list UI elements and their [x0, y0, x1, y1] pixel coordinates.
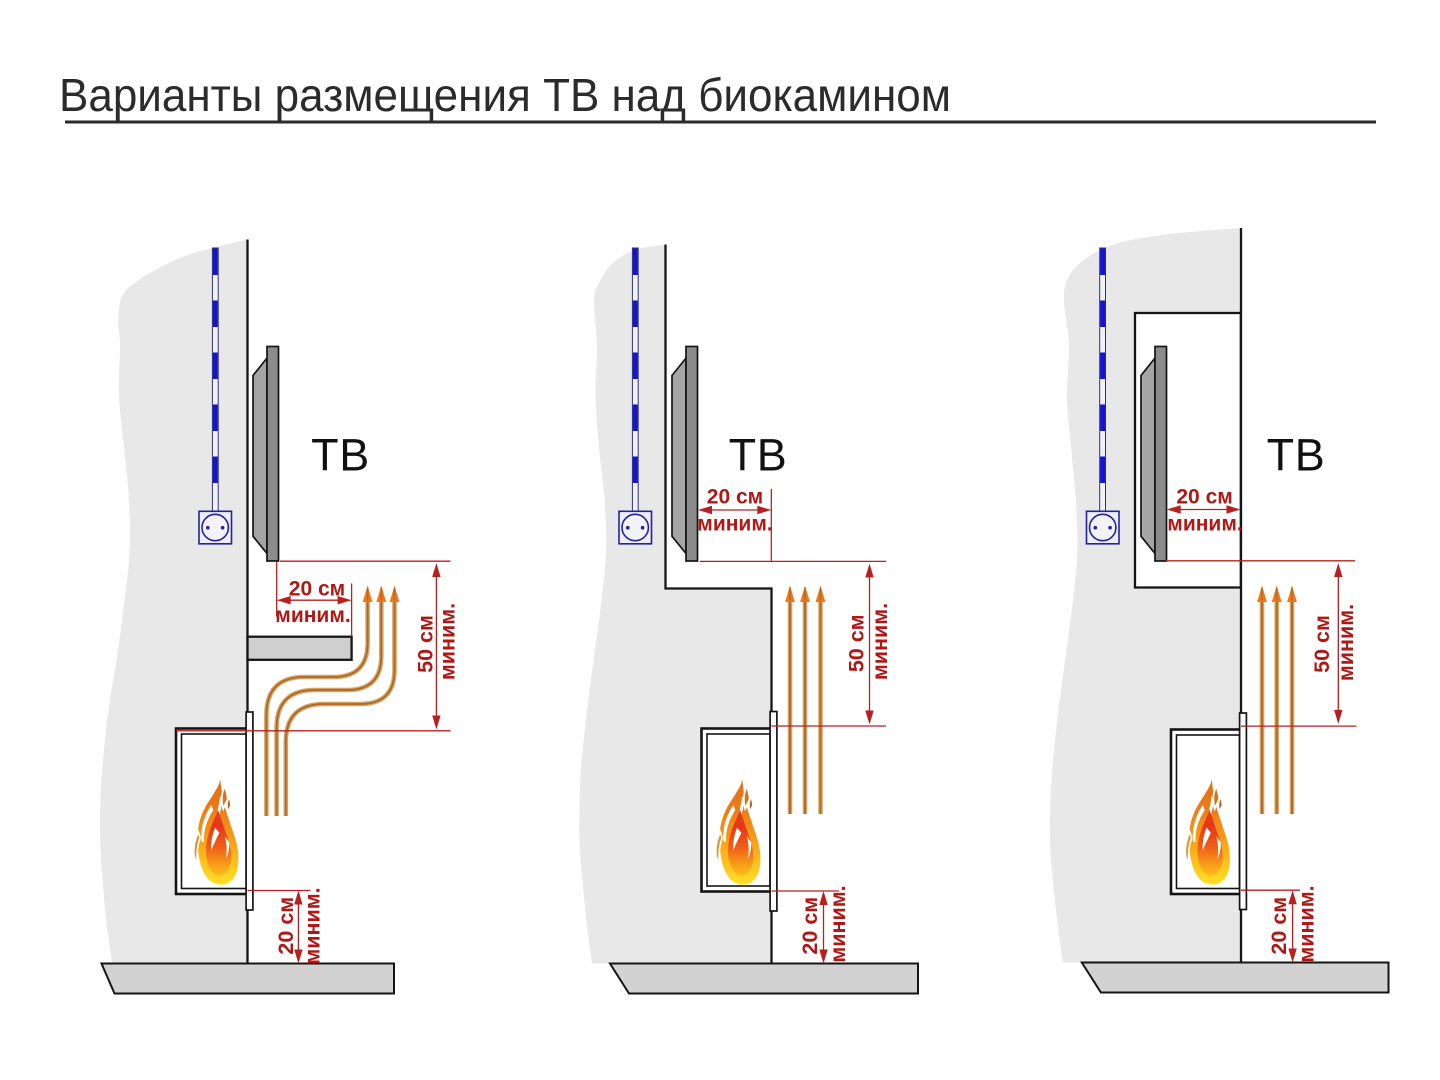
- svg-text:миним.: миним.: [275, 604, 350, 627]
- svg-text:20 см: 20 см: [1176, 485, 1232, 508]
- svg-text:миним.: миним.: [1295, 885, 1319, 962]
- svg-text:20 см: 20 см: [707, 485, 763, 508]
- svg-text:миним.: миним.: [301, 887, 325, 964]
- svg-text:ТВ: ТВ: [729, 430, 788, 481]
- svg-text:20 см: 20 см: [289, 578, 345, 601]
- svg-text:миним.: миним.: [697, 513, 772, 536]
- svg-text:20 см: 20 см: [274, 897, 298, 955]
- svg-text:20 см: 20 см: [1267, 897, 1291, 955]
- svg-text:миним.: миним.: [868, 603, 892, 680]
- svg-text:50 см: 50 см: [1310, 615, 1334, 673]
- svg-text:Варианты размещения ТВ над био: Варианты размещения ТВ над биокамином: [59, 69, 951, 121]
- svg-text:50 см: 50 см: [845, 614, 869, 672]
- svg-text:миним.: миним.: [1167, 513, 1242, 536]
- svg-text:миним.: миним.: [1334, 604, 1358, 681]
- svg-text:50 см: 50 см: [414, 615, 438, 673]
- svg-text:20 см: 20 см: [798, 897, 822, 955]
- svg-text:миним.: миним.: [435, 603, 459, 680]
- svg-text:миним.: миним.: [826, 885, 850, 962]
- svg-text:ТВ: ТВ: [1267, 430, 1326, 481]
- svg-text:ТВ: ТВ: [311, 430, 370, 481]
